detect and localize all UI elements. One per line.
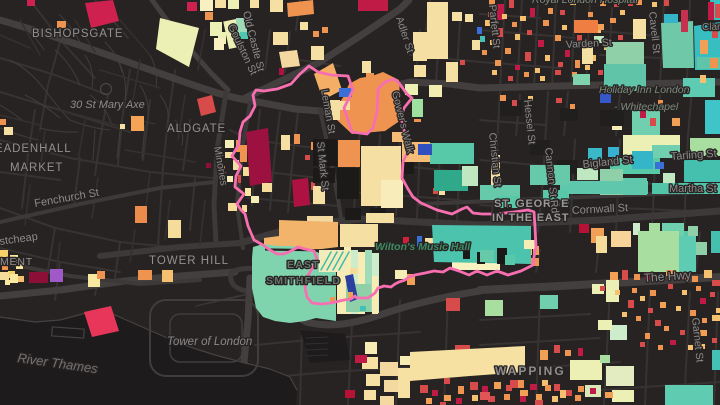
svg-text:Martha St: Martha St <box>669 183 717 195</box>
svg-text:ALDGATE: ALDGATE <box>167 123 226 135</box>
svg-text:Clark: Clark <box>702 22 720 33</box>
svg-text:IN THE EAST: IN THE EAST <box>492 212 569 224</box>
svg-text:WAPPING: WAPPING <box>495 364 566 378</box>
svg-text:Royal London Hospital: Royal London Hospital <box>532 0 638 6</box>
svg-text:30 St Mary Axe: 30 St Mary Axe <box>70 99 145 111</box>
svg-text:EADENHALL: EADENHALL <box>0 143 72 155</box>
svg-text:Varden St: Varden St <box>566 37 613 51</box>
svg-text:EAST: EAST <box>287 259 320 271</box>
svg-text:- Whitechapel: - Whitechapel <box>614 101 679 113</box>
svg-text:Holiday Inn London: Holiday Inn London <box>599 84 690 96</box>
svg-text:Tower of London: Tower of London <box>167 336 252 348</box>
svg-text:BISHOPSGATE: BISHOPSGATE <box>32 28 123 40</box>
svg-text:SMITHFIELD: SMITHFIELD <box>266 275 341 287</box>
svg-text:TOWER HILL: TOWER HILL <box>149 255 229 267</box>
svg-text:MARKET: MARKET <box>10 162 63 174</box>
svg-text:Wilton's Music Hall: Wilton's Music Hall <box>375 241 471 253</box>
svg-text:MENT: MENT <box>0 256 33 268</box>
